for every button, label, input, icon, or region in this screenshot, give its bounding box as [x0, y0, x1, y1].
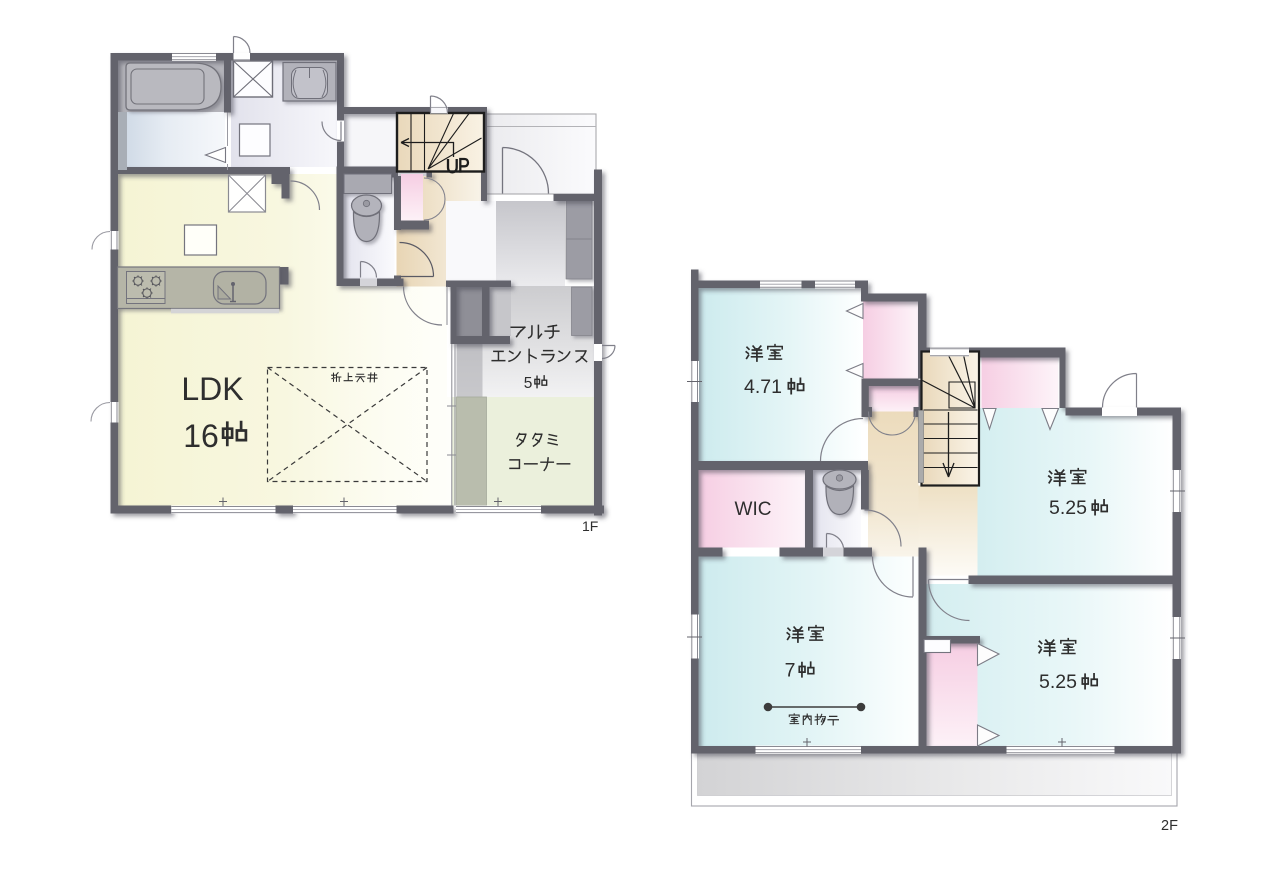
svg-text:7: 7: [785, 660, 796, 682]
svg-text:5: 5: [524, 375, 533, 392]
svg-text:2F: 2F: [1161, 818, 1178, 834]
svg-text:5.25: 5.25: [1049, 497, 1087, 519]
svg-text:5.25: 5.25: [1039, 671, 1077, 693]
svg-text:LDK: LDK: [181, 371, 243, 407]
svg-text:WIC: WIC: [735, 499, 772, 520]
svg-text:16: 16: [183, 418, 219, 454]
svg-text:4.71: 4.71: [744, 376, 782, 398]
svg-text:1F: 1F: [582, 518, 598, 534]
